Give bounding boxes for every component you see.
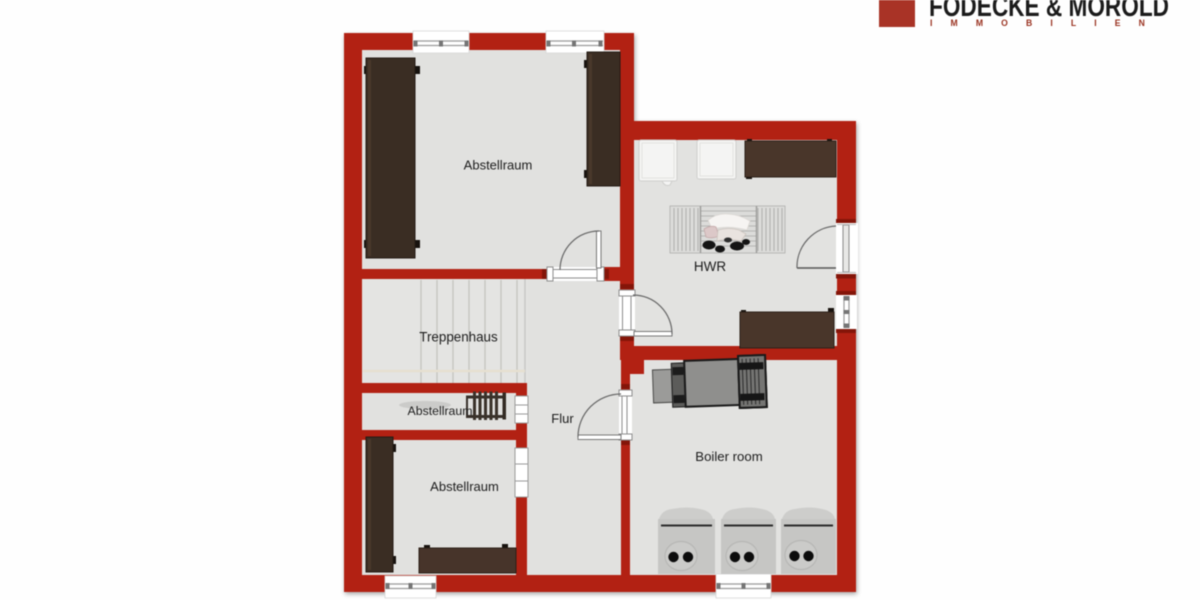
svg-text:HWR: HWR	[694, 259, 726, 274]
svg-text:Flur: Flur	[551, 411, 574, 426]
svg-text:Treppenhaus: Treppenhaus	[419, 330, 498, 345]
svg-text:IMMOBILIEN: IMMOBILIEN	[930, 18, 1163, 29]
svg-text:Abstellraum: Abstellraum	[430, 479, 499, 494]
svg-text:Abstellraum: Abstellraum	[464, 158, 533, 173]
svg-text:Abstellraum: Abstellraum	[408, 404, 473, 418]
svg-text:Boiler room: Boiler room	[695, 449, 762, 464]
